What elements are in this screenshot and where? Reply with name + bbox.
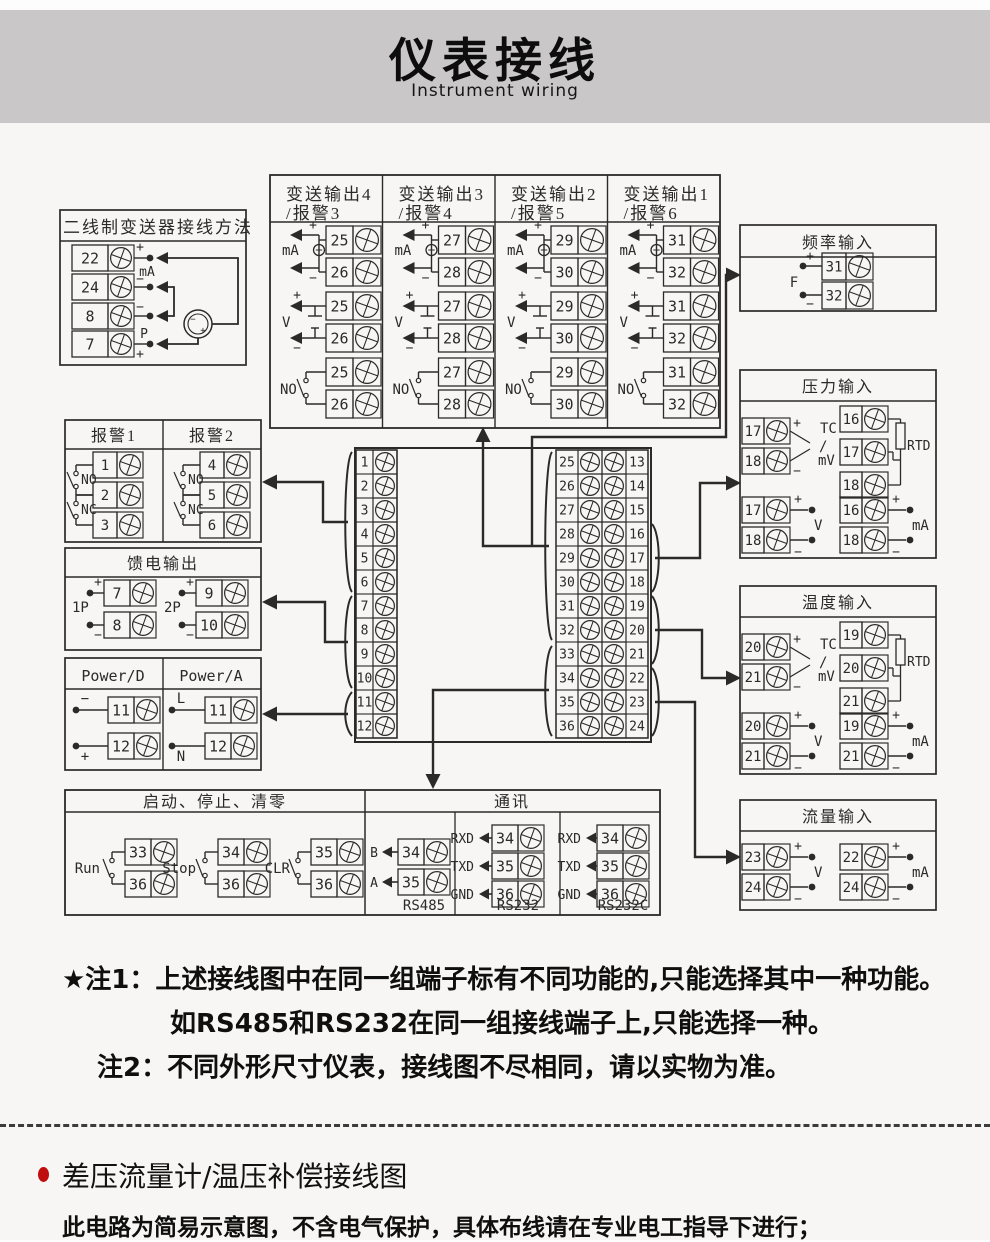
svg-text:32: 32 [668, 329, 686, 347]
svg-text:3: 3 [361, 504, 369, 519]
svg-text:报警1: 报警1 [91, 427, 137, 445]
svg-text:−: − [793, 680, 801, 695]
svg-text:V: V [814, 518, 823, 534]
svg-text:+: + [293, 288, 301, 303]
svg-text:27: 27 [559, 504, 575, 519]
svg-text:TC: TC [820, 637, 837, 653]
svg-text:11: 11 [357, 696, 373, 711]
svg-text:31: 31 [826, 260, 843, 276]
svg-text:19: 19 [843, 719, 860, 735]
note-1-line-1: ★注1：上述接线图中在同一组端子标有不同功能的,只能选择其中一种功能。 [62, 959, 945, 996]
svg-text:Power/A: Power/A [179, 667, 242, 685]
svg-text:11: 11 [209, 701, 227, 719]
svg-text:V: V [395, 315, 404, 331]
svg-text:24: 24 [745, 880, 762, 896]
svg-text:NO: NO [188, 473, 204, 488]
svg-text:17: 17 [629, 552, 645, 567]
svg-text:NO: NO [280, 382, 297, 398]
svg-text:−: − [892, 545, 900, 560]
svg-text:B: B [370, 846, 378, 861]
svg-text:21: 21 [843, 749, 860, 765]
svg-text:5: 5 [361, 552, 369, 567]
svg-text:27: 27 [443, 363, 461, 381]
svg-text:报警2: 报警2 [189, 427, 235, 445]
svg-text:+: + [892, 708, 900, 723]
svg-text:20: 20 [843, 661, 860, 677]
svg-text:变送输出1: 变送输出1 [624, 185, 711, 204]
svg-text:34: 34 [222, 843, 240, 861]
svg-text:35: 35 [315, 843, 333, 861]
svg-text:NO: NO [393, 382, 410, 398]
svg-text:27: 27 [443, 297, 461, 315]
svg-text:34: 34 [559, 672, 575, 687]
svg-text:NC: NC [81, 503, 97, 518]
svg-text:RS485: RS485 [403, 898, 445, 914]
svg-text:+: + [794, 839, 802, 854]
svg-text:+: + [793, 416, 801, 431]
svg-text:20: 20 [745, 640, 762, 656]
svg-text:28: 28 [443, 329, 461, 347]
svg-text:25: 25 [559, 456, 575, 471]
svg-text:32: 32 [826, 289, 843, 305]
svg-text:mA: mA [912, 865, 929, 881]
svg-text:33: 33 [129, 843, 147, 861]
svg-text:mA: mA [912, 518, 929, 534]
svg-text:RTD: RTD [907, 655, 931, 670]
svg-text:16: 16 [843, 412, 860, 428]
svg-text:29: 29 [555, 363, 573, 381]
svg-text:+: + [892, 839, 900, 854]
box-two-wire-transmitter: 二线制变送器接线方法222487+mA−−P+−+ [60, 210, 253, 365]
svg-text:−: − [518, 341, 526, 356]
svg-text:−: − [631, 341, 639, 356]
svg-text:TXD: TXD [451, 860, 475, 875]
svg-text:启动、停止、清零: 启动、停止、清零 [143, 793, 287, 811]
svg-text:34: 34 [601, 829, 619, 847]
svg-text:30: 30 [555, 329, 573, 347]
svg-text:−: − [309, 271, 317, 286]
svg-text:28: 28 [559, 528, 575, 543]
svg-text:GND: GND [451, 888, 475, 903]
svg-text:TC: TC [820, 421, 837, 437]
svg-text:RS232: RS232 [497, 898, 539, 914]
svg-text:−: − [293, 341, 301, 356]
svg-text:36: 36 [315, 875, 333, 893]
svg-text:NO: NO [618, 382, 635, 398]
svg-text:2: 2 [361, 480, 369, 495]
svg-text:NO: NO [81, 473, 97, 488]
svg-text:+: + [647, 218, 655, 233]
svg-text:25: 25 [330, 363, 348, 381]
svg-text:F: F [790, 275, 798, 291]
svg-text:18: 18 [843, 478, 860, 494]
svg-text:L: L [177, 691, 185, 707]
svg-text:mA: mA [282, 243, 299, 259]
svg-text:压力输入: 压力输入 [802, 378, 874, 396]
svg-text:CLR: CLR [265, 861, 291, 877]
svg-text:31: 31 [559, 600, 575, 615]
svg-text:1: 1 [361, 456, 369, 471]
title-band: 仪表接线 Instrument wiring [0, 10, 990, 123]
svg-text:Power/D: Power/D [81, 667, 144, 685]
svg-text:8: 8 [112, 616, 121, 634]
svg-text:−: − [892, 892, 900, 907]
svg-text:−: − [806, 297, 814, 312]
svg-text:7: 7 [112, 584, 121, 602]
svg-text:+: + [806, 249, 814, 264]
svg-text:32: 32 [668, 263, 686, 281]
svg-text:7: 7 [85, 335, 94, 353]
svg-text:36: 36 [559, 720, 575, 735]
svg-text:mV: mV [818, 453, 835, 469]
svg-text:A: A [370, 876, 378, 891]
svg-text:23: 23 [745, 850, 762, 866]
svg-text:27: 27 [443, 231, 461, 249]
svg-text:30: 30 [559, 576, 575, 591]
page-subtitle: Instrument wiring [0, 81, 990, 101]
svg-text:19: 19 [629, 600, 645, 615]
svg-text:18: 18 [629, 576, 645, 591]
box-transmit-outputs: 变送输出4/报警32526+−mA2526+−V2526NO变送输出3/报警42… [270, 175, 720, 428]
svg-text:2P: 2P [164, 600, 181, 616]
svg-text:mA: mA [620, 243, 637, 259]
svg-text:−: − [647, 271, 655, 286]
svg-text:29: 29 [555, 297, 573, 315]
svg-text:NO: NO [505, 382, 522, 398]
svg-text:24: 24 [81, 278, 99, 296]
svg-text:34: 34 [402, 843, 420, 861]
svg-text:9: 9 [361, 648, 369, 663]
box-flow-input: 流量输入2324+−V2224+−mA [740, 800, 936, 910]
svg-text:+: + [309, 218, 317, 233]
svg-text:16: 16 [629, 528, 645, 543]
svg-text:RTD: RTD [907, 439, 931, 454]
svg-text:30: 30 [555, 395, 573, 413]
svg-text:10: 10 [357, 672, 373, 687]
svg-text:12: 12 [209, 737, 227, 755]
svg-text:31: 31 [668, 297, 686, 315]
svg-text:mA: mA [395, 243, 412, 259]
svg-text:P: P [140, 327, 148, 342]
section-heading: 差压流量计/温压补偿接线图 [62, 1155, 407, 1195]
svg-text:Stop: Stop [162, 861, 196, 877]
svg-text:17: 17 [745, 503, 762, 519]
svg-text:32: 32 [668, 395, 686, 413]
svg-text:−: − [406, 341, 414, 356]
svg-text:温度输入: 温度输入 [802, 594, 874, 612]
svg-text:V: V [282, 315, 291, 331]
svg-text:10: 10 [200, 616, 218, 634]
dashed-divider [0, 1124, 990, 1127]
svg-text:RS232C: RS232C [598, 898, 649, 914]
svg-text:25: 25 [330, 297, 348, 315]
svg-text:+: + [422, 218, 430, 233]
svg-text:4: 4 [208, 458, 216, 474]
svg-text:35: 35 [601, 857, 619, 875]
svg-text:14: 14 [629, 480, 645, 495]
svg-text:+: + [136, 347, 144, 362]
svg-text:2: 2 [101, 488, 109, 504]
svg-text:V: V [814, 865, 823, 881]
svg-text:通讯: 通讯 [494, 793, 530, 811]
box-power: Power/D1112−+Power/A1112LN [65, 658, 261, 770]
svg-text:+: + [518, 288, 526, 303]
svg-text:34: 34 [496, 829, 514, 847]
svg-text:变送输出2: 变送输出2 [511, 185, 598, 204]
svg-text:+: + [186, 575, 194, 590]
svg-text:32: 32 [559, 624, 575, 639]
svg-text:GND: GND [558, 888, 582, 903]
svg-text:19: 19 [843, 628, 860, 644]
svg-text:−: − [136, 272, 144, 287]
svg-text:−: − [94, 628, 102, 643]
svg-text:30: 30 [555, 263, 573, 281]
svg-text:−: − [190, 315, 196, 325]
svg-text:5: 5 [208, 488, 216, 504]
svg-text:+: + [94, 575, 102, 590]
svg-text:+: + [631, 288, 639, 303]
svg-text:31: 31 [668, 363, 686, 381]
svg-text:11: 11 [112, 701, 130, 719]
svg-text:−: − [136, 300, 144, 315]
svg-text:24: 24 [629, 720, 645, 735]
svg-text:+: + [892, 492, 900, 507]
svg-text:RXD: RXD [558, 832, 582, 847]
note-1-line-2: 如RS485和RS232在同一组接线端子上,只能选择一种。 [170, 1003, 834, 1040]
svg-text:12: 12 [112, 737, 130, 755]
svg-text:36: 36 [222, 875, 240, 893]
svg-text:18: 18 [745, 454, 762, 470]
svg-text:+: + [794, 708, 802, 723]
svg-text:V: V [620, 315, 629, 331]
svg-text:mA: mA [912, 734, 929, 750]
svg-text:26: 26 [559, 480, 575, 495]
svg-text:8: 8 [85, 307, 94, 325]
svg-text:−: − [81, 691, 89, 707]
svg-text:−: − [794, 892, 802, 907]
svg-text:12: 12 [357, 720, 373, 735]
svg-text:28: 28 [443, 263, 461, 281]
wiring-diagram: 二线制变送器接线方法222487+mA−−P+−+变送输出4/报警32526+−… [0, 140, 990, 940]
svg-text:NC: NC [188, 503, 204, 518]
svg-text:22: 22 [81, 249, 99, 267]
svg-text:V: V [507, 315, 516, 331]
svg-text:8: 8 [361, 624, 369, 639]
svg-text:−: − [793, 464, 801, 479]
box-pressure-input: 压力输入1718+−TC/mV161718RTD1718+−V1618+−mA [740, 370, 936, 560]
svg-text:26: 26 [330, 395, 348, 413]
svg-text:22: 22 [843, 850, 860, 866]
svg-text:3: 3 [101, 518, 109, 534]
svg-text:24: 24 [843, 880, 860, 896]
svg-text:29: 29 [555, 231, 573, 249]
svg-text:28: 28 [443, 395, 461, 413]
svg-text:7: 7 [361, 600, 369, 615]
svg-text:21: 21 [745, 749, 762, 765]
svg-text:−: − [186, 628, 194, 643]
note-2: 注2：不同外形尺寸仪表，接线图不尽相同，请以实物为准。 [97, 1047, 791, 1084]
box-temperature-input: 温度输入2021+−TC/mV192021RTD2021+−V1921+−mA [740, 586, 936, 776]
section-body: 此电路为简易示意图，不含电气保护，具体布线请在专业电工指导下进行； [62, 1208, 821, 1242]
svg-text:35: 35 [559, 696, 575, 711]
svg-text:RXD: RXD [451, 832, 475, 847]
svg-text:25: 25 [330, 231, 348, 249]
svg-text:9: 9 [204, 584, 213, 602]
svg-text:N: N [177, 749, 185, 765]
svg-text:35: 35 [496, 857, 514, 875]
svg-text:16: 16 [843, 503, 860, 519]
box-alarm-1-2: 报警1123NONC报警2456NONC [65, 420, 261, 542]
svg-text:+: + [534, 218, 542, 233]
svg-text:26: 26 [330, 329, 348, 347]
svg-text:35: 35 [402, 873, 420, 891]
svg-text:23: 23 [629, 696, 645, 711]
box-feed-output: 馈电输出1P78+−2P910+− [65, 548, 261, 650]
svg-text:馈电输出: 馈电输出 [127, 555, 199, 573]
svg-text:+: + [794, 492, 802, 507]
svg-text:−: − [534, 271, 542, 286]
center-terminal-strips: 1234567891011122513261427152816291730183… [345, 448, 659, 742]
svg-text:−: − [892, 761, 900, 776]
svg-text:26: 26 [330, 263, 348, 281]
svg-text:二线制变送器接线方法: 二线制变送器接线方法 [63, 218, 253, 237]
svg-text:15: 15 [629, 504, 645, 519]
svg-text:21: 21 [745, 670, 762, 686]
svg-text:TXD: TXD [558, 860, 582, 875]
svg-text:21: 21 [629, 648, 645, 663]
svg-text:V: V [814, 734, 823, 750]
svg-text:+: + [200, 326, 206, 336]
svg-text:+: + [136, 240, 144, 255]
svg-text:18: 18 [843, 533, 860, 549]
svg-text:流量输入: 流量输入 [802, 808, 874, 826]
svg-text:13: 13 [629, 456, 645, 471]
svg-text:变送输出4: 变送输出4 [286, 185, 373, 204]
svg-text:6: 6 [208, 518, 216, 534]
svg-text:4: 4 [361, 528, 369, 543]
svg-text:31: 31 [668, 231, 686, 249]
red-bullet-icon [38, 1167, 49, 1182]
box-frequency-input: 频率输入3132+−F [740, 225, 936, 312]
svg-text:20: 20 [629, 624, 645, 639]
svg-text:33: 33 [559, 648, 575, 663]
svg-text:−: − [794, 545, 802, 560]
svg-text:−: − [794, 761, 802, 776]
svg-text:mA: mA [507, 243, 524, 259]
svg-text:Run: Run [75, 861, 100, 877]
svg-text:36: 36 [129, 875, 147, 893]
svg-text:+: + [81, 749, 89, 765]
svg-text:6: 6 [361, 576, 369, 591]
connection-wires [262, 268, 741, 865]
svg-text:18: 18 [745, 533, 762, 549]
svg-text:+: + [406, 288, 414, 303]
svg-text:21: 21 [843, 694, 860, 710]
svg-text:20: 20 [745, 719, 762, 735]
svg-text:22: 22 [629, 672, 645, 687]
svg-text:+: + [793, 632, 801, 647]
svg-text:变送输出3: 变送输出3 [399, 185, 486, 204]
svg-text:29: 29 [559, 552, 575, 567]
svg-text:1P: 1P [72, 600, 89, 616]
svg-text:1: 1 [101, 458, 109, 474]
svg-text:17: 17 [843, 445, 860, 461]
svg-text:mV: mV [818, 669, 835, 685]
svg-text:17: 17 [745, 424, 762, 440]
svg-text:−: − [422, 271, 430, 286]
